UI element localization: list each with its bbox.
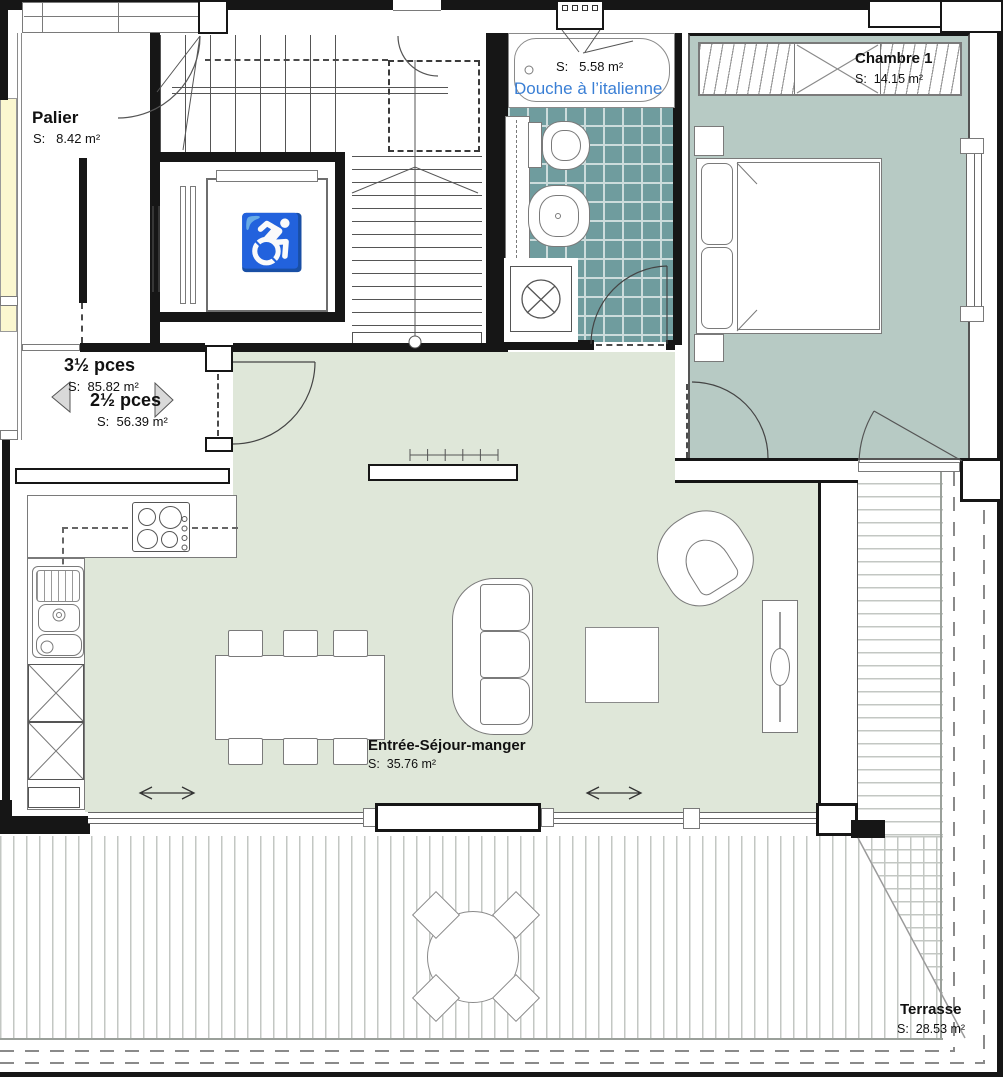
apartment-label-3-5: 3½ pces <box>64 355 135 376</box>
stove-knob-1 <box>182 517 187 522</box>
bathtub-drain <box>525 66 533 74</box>
sink-drain <box>41 641 53 653</box>
room-area-bedroom: S: 14.15 m² <box>855 72 923 86</box>
door-leaf-fan-stair <box>157 36 200 150</box>
room-label-bedroom: Chambre 1 <box>855 50 933 67</box>
door-arc-bathroom <box>591 266 667 344</box>
room-label-palier: Palier <box>32 108 78 128</box>
door-arc-palier-entry <box>118 36 200 118</box>
floor-plan: ♿ <box>0 0 1003 1080</box>
door-arc-stair-top <box>398 36 438 76</box>
stove-knob-3 <box>182 536 187 541</box>
room-label-terrace: Terrasse <box>900 1001 961 1018</box>
bed-fold-marks <box>737 163 757 331</box>
elevator-door-lines <box>153 206 159 292</box>
room-area-shower: S: 5.58 m² <box>556 60 623 75</box>
stove-knob-2 <box>182 526 187 531</box>
bidet-drain <box>556 214 561 219</box>
shelf-tick-marks <box>410 449 498 461</box>
room-area-terrace: S: 28.53 m² <box>897 1022 965 1036</box>
room-area-palier: S: 8.42 m² <box>33 132 100 147</box>
apartment-area-2-5: S: 56.39 m² <box>97 415 168 430</box>
door-arc-bedroom <box>692 382 768 458</box>
stove-knob-4 <box>182 545 187 550</box>
door-bedroom-terrace <box>859 411 962 462</box>
room-label-living: Entrée-Séjour-manger <box>368 737 526 754</box>
room-area-living: S: 35.76 m² <box>368 757 436 771</box>
stair-center-circle <box>409 336 421 348</box>
vent-funnel-lines <box>562 30 633 53</box>
sliding-door-arrow-icon-left <box>140 787 194 799</box>
sliding-door-arrow-icon-right <box>587 787 641 799</box>
door-arc-vestibule <box>233 362 315 444</box>
plan-linework <box>0 0 1003 1080</box>
room-label-shower: Douche à l’italienne <box>514 79 662 99</box>
kitchen-unit-x-lines <box>29 665 83 779</box>
sink-faucet-2 <box>57 613 62 618</box>
apartment-label-2-5: 2½ pces <box>90 390 161 411</box>
